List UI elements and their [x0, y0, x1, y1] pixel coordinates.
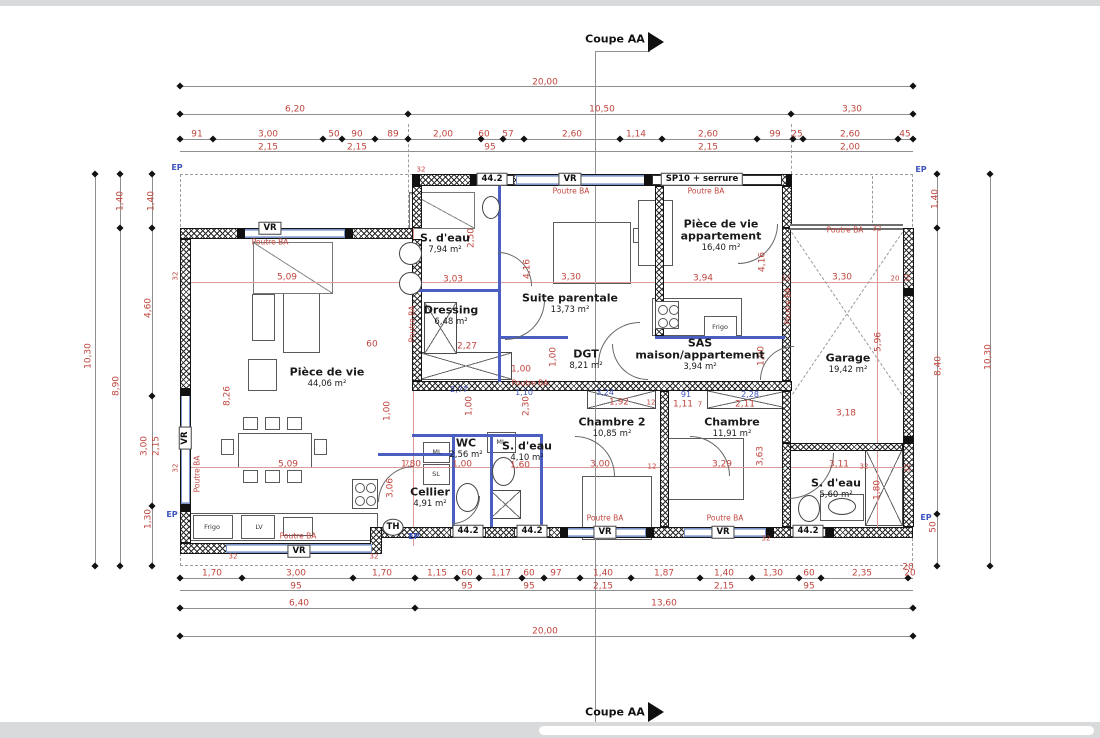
dimension-label: 95 [290, 583, 301, 592]
dimension-tick [116, 170, 123, 177]
dimension-tick [91, 170, 98, 177]
dimension-label: 2,60 [698, 131, 718, 140]
wall-junction [786, 174, 792, 186]
dimension-label: 57 [502, 131, 513, 140]
window-vr-tag: VR [593, 526, 616, 539]
wall-junction [345, 228, 353, 239]
dimension-label: 2,15 [347, 144, 367, 153]
dimension-label: 60 [523, 570, 534, 579]
dimension-tick [748, 574, 755, 581]
wall-junction [180, 388, 191, 396]
dimension-tick [411, 604, 418, 611]
dimension-tick [176, 82, 183, 89]
room-dgt-area: 8,21 m² [569, 362, 602, 371]
dimension-tick [176, 110, 183, 117]
dimension-label: 3,03 [443, 276, 463, 285]
window-vr-tag: VR [287, 545, 310, 558]
red-dimension-line [191, 282, 905, 283]
dimension-tick [909, 632, 916, 639]
dimension-tick [148, 170, 155, 177]
dimension-tick [319, 135, 326, 142]
beam-note-label: Poutre BA [688, 187, 725, 195]
burner-icon [669, 305, 679, 315]
closet-cross [490, 490, 521, 519]
dimension-label: 5,96 [875, 332, 884, 352]
window-vr-tag: VR [258, 222, 281, 235]
dimension-label: 99 [769, 131, 780, 140]
dimension-label: 2,15 [593, 583, 613, 592]
dimension-tick [576, 574, 583, 581]
room-s-eau-1: S. d'eau [420, 233, 470, 244]
cooktop [655, 301, 679, 329]
room-garage-area: 19,42 m² [829, 366, 868, 375]
dimension-label: 91 [191, 131, 202, 140]
dimension-label: 1,70 [202, 570, 222, 579]
window-top-edge [0, 0, 1100, 6]
dimension-small-label: 20 [891, 276, 900, 283]
dimension-small-label: 32 [873, 226, 882, 233]
beam-note-label: Poutre BA [193, 456, 201, 493]
room-s-eau-3: S. d'eau [811, 478, 861, 489]
dimension-label: 1,60 [510, 462, 530, 471]
floor-plan-sheet: Coupe AA Coupe AA 20,006,2010,503,30913,… [0, 6, 1100, 722]
room-garage: Garage [826, 353, 871, 364]
dimension-small-label: 7 [698, 402, 702, 409]
dimension-label: 2,15 [258, 144, 278, 153]
room-wc: WC [456, 438, 476, 449]
appliance-label: Frigo [712, 324, 728, 331]
dimension-label: 1,30 [763, 570, 783, 579]
room-s-eau-3-area: 5,60 m² [819, 491, 852, 500]
dimension-blue-label: 3,24 [596, 389, 614, 397]
dimension-label: 8,40 [935, 356, 944, 376]
window-vr [516, 175, 648, 185]
wall-junction [237, 228, 245, 239]
dimension-label: 1,15 [427, 570, 447, 579]
dimension-label: 3,94 [693, 275, 713, 284]
beam-note-label: Poutre BA [827, 226, 864, 234]
section-arrow [648, 702, 664, 722]
dimension-tick [404, 110, 411, 117]
furniture [314, 439, 327, 455]
burner-icon [366, 496, 376, 506]
dimension-label: 2,60 [562, 131, 582, 140]
dimension-label: 60 [803, 570, 814, 579]
dimension-label: 95 [523, 583, 534, 592]
burner-icon [355, 496, 365, 506]
dimension-label: 3,00 [141, 436, 150, 456]
wall-junction [903, 288, 914, 296]
burner-icon [669, 318, 679, 328]
dimension-label: 2,00 [433, 131, 453, 140]
beam-note-label: Poutre BA [408, 306, 416, 343]
room-dressing: Dressing [424, 305, 479, 316]
dimension-label: 3,00 [258, 131, 278, 140]
dimension-label: 10,30 [985, 344, 994, 370]
dimension-label: 1,00 [384, 401, 393, 421]
dimension-label: 2,11 [735, 401, 755, 410]
ep-marker: EP [166, 511, 177, 519]
room-sas: SAS [688, 338, 712, 349]
dimension-label: 1,30 [145, 509, 154, 529]
dimension-blue-label: 91 [681, 391, 691, 399]
room-chambre-area: 11,91 m² [713, 430, 752, 439]
wall-junction [646, 527, 654, 538]
beam-note-label: Poutre BA [512, 379, 549, 387]
dimension-label: 2,35 [852, 570, 872, 579]
dimension-tick [209, 135, 216, 142]
dimension-label: 2,00 [840, 144, 860, 153]
dimension-label: 4,16 [759, 252, 768, 272]
dimension-tick [986, 170, 993, 177]
dimension-label: 3,18 [836, 410, 856, 419]
room-suite-parentale-area: 13,73 m² [551, 306, 590, 315]
dimension-label: 3,63 [757, 446, 766, 466]
furniture [243, 470, 258, 483]
dimension-label: 60 [461, 570, 472, 579]
dimension-small-label: 12 [782, 276, 791, 283]
dimension-small-label: 32 [370, 554, 379, 561]
window-vr-tag: VR [558, 173, 581, 186]
partition-wall [412, 289, 501, 292]
door-44-tag: 44.2 [453, 525, 484, 538]
dimension-label: 1,40 [593, 570, 613, 579]
dimension-tick [540, 574, 547, 581]
dimension-tick [176, 574, 183, 581]
burner-icon [366, 483, 376, 493]
dimension-tick [616, 135, 623, 142]
window-bottom-edge [0, 722, 1100, 738]
beam-note-label: Poutre BA [280, 532, 317, 540]
ep-marker: EP [408, 533, 419, 541]
dimension-label: 13,60 [651, 600, 677, 609]
dimension-label: 2,15 [698, 144, 718, 153]
sanitary-fixture [399, 242, 422, 265]
dimension-label: 60 [478, 131, 489, 140]
app-window: Coupe AA Coupe AA 20,006,2010,503,30913,… [0, 0, 1100, 738]
dimension-tick [176, 135, 183, 142]
room-dressing-area: 6,48 m² [434, 318, 467, 327]
room-s-eau-1-area: 7,94 m² [428, 246, 461, 255]
dimension-label: 2,27 [457, 343, 477, 352]
dimension-label: 50 [328, 131, 339, 140]
dimension-label: 25 [791, 131, 802, 140]
wall [660, 391, 669, 527]
dimension-small-label: 12 [647, 400, 656, 407]
wall-junction [412, 174, 420, 186]
door-sp10-serrure-tag: SP10 + serrure [661, 173, 743, 186]
dimension-label: 1,00 [466, 396, 475, 416]
beam-note-label: Poutre BA [587, 514, 624, 522]
furniture [252, 294, 275, 341]
dimension-label: 3,11 [829, 461, 849, 470]
appliance-label: Frigo [204, 524, 220, 531]
room-piece-de-vie-area: 44,06 m² [308, 380, 347, 389]
section-arrow [648, 32, 664, 52]
sanitary-fixture [482, 196, 500, 219]
section-label-top: Coupe AA [585, 34, 645, 45]
dimension-tick [696, 574, 703, 581]
cooktop [352, 479, 378, 509]
dimension-line [120, 174, 121, 566]
dimension-label: 89 [387, 131, 398, 140]
horizontal-scrollbar[interactable] [539, 726, 1094, 735]
dimension-tick [520, 135, 527, 142]
dimension-label: 20 [902, 564, 913, 573]
dimension-label: 1,70 [372, 570, 392, 579]
dimension-label: 20,00 [532, 628, 558, 637]
dimension-small-label: 32 [229, 554, 238, 561]
dimension-label: 2,15 [153, 436, 162, 456]
dimension-small-label: 7 [405, 461, 409, 468]
closet-cross [865, 449, 903, 526]
dimension-tick [349, 574, 356, 581]
room-s-eau-2-area: 4,10 m² [510, 454, 543, 463]
dimension-small-label: 32 [905, 464, 912, 473]
dimension-tick [411, 574, 418, 581]
dimension-tick [148, 562, 155, 569]
dimension-label: 2,30 [523, 396, 532, 416]
furniture [221, 439, 234, 455]
dimension-tick [475, 574, 482, 581]
sanitary-fixture [399, 272, 422, 295]
dimension-blue-label: 2,77 [450, 386, 468, 394]
dimension-label: 97 [550, 570, 561, 579]
beam-note-label: Poutre BA [707, 514, 744, 522]
partition-wall [655, 336, 785, 339]
furniture [265, 417, 280, 430]
room-cellier: Cellier [410, 487, 450, 498]
dimension-tick [116, 224, 123, 231]
dimension-label: 3,30 [832, 274, 852, 283]
wall-junction [826, 527, 834, 538]
dimension-tick [909, 82, 916, 89]
section-label-bottom: Coupe AA [585, 707, 645, 718]
dimension-label: 1,40 [932, 189, 941, 209]
shower-fan [253, 242, 333, 294]
dimension-label: 6,20 [285, 106, 305, 115]
wall [412, 186, 422, 228]
dimension-tick [627, 574, 634, 581]
dimension-label: 8,26 [224, 386, 233, 406]
burner-icon [355, 483, 365, 493]
wall [782, 443, 903, 451]
dimension-tick [148, 392, 155, 399]
door-44-tag: 44.2 [793, 525, 824, 538]
dimension-label: 1,17 [491, 570, 511, 579]
appliance-label: ML [432, 449, 441, 456]
room-sas-area: 3,94 m² [683, 363, 716, 372]
dimension-small-label: 12 [648, 464, 657, 471]
dimension-label: 60 [366, 341, 377, 350]
furniture [287, 470, 302, 483]
dimension-label: 1,40 [148, 191, 157, 211]
dimension-label: 95 [484, 144, 495, 153]
beam-note-label: Poutre BA [252, 238, 289, 246]
wall-junction [180, 504, 191, 512]
room-chambre-2: Chambre 2 [578, 417, 645, 428]
dimension-label: 3,00 [590, 461, 610, 470]
dimension-tick [817, 574, 824, 581]
dimension-line [95, 174, 96, 566]
furniture [265, 470, 280, 483]
dimension-label: 3,30 [561, 274, 581, 283]
dimension-small-label: 32 [173, 272, 180, 281]
dimension-label: 1,40 [117, 191, 126, 211]
window-vr-tag: VR [711, 526, 734, 539]
dimension-tick [933, 562, 940, 569]
dimension-tick [933, 170, 940, 177]
dimension-label: 4,60 [145, 298, 154, 318]
dimension-tick [909, 604, 916, 611]
dimension-tick [176, 604, 183, 611]
dimension-label: 2,15 [714, 583, 734, 592]
dimension-label: 2,60 [840, 131, 860, 140]
room-piece-de-vie-appartement-line2: appartement [681, 231, 762, 242]
burner-icon [658, 305, 668, 315]
dimension-label: 3,06 [387, 478, 396, 498]
dimension-label: 1,11 [673, 401, 693, 410]
dimension-small-label: 32 [173, 464, 180, 473]
dimension-tick [787, 110, 794, 117]
furniture [287, 417, 302, 430]
dimension-label: 1,00 [452, 461, 472, 470]
dimension-label: 1,00 [511, 366, 531, 375]
room-chambre: Chambre [704, 417, 760, 428]
partition-wall [490, 434, 493, 527]
dimension-small-label: 32 [860, 464, 869, 471]
dimension-tick [795, 574, 802, 581]
dimension-tick [404, 135, 411, 142]
partition-wall [378, 453, 454, 456]
dimension-tick [453, 574, 460, 581]
door-44-tag: 44.2 [477, 173, 508, 186]
dimension-tick [238, 574, 245, 581]
dimension-label: 1,40 [714, 570, 734, 579]
dimension-label: 8,90 [113, 376, 122, 396]
wall [782, 186, 792, 228]
room-s-eau-2: S. d'eau [502, 441, 552, 452]
dimension-label: 45 [899, 131, 910, 140]
dimension-small-label: 32 [905, 274, 912, 283]
dimension-label: 5,09 [277, 274, 297, 283]
dashed-projection-line [872, 176, 873, 228]
room-piece-de-vie-appartement-area: 16,40 m² [702, 244, 741, 253]
dimension-label: 5,09 [278, 461, 298, 470]
dimension-label: 6,40 [289, 600, 309, 609]
dimension-small-label: 32 [762, 536, 771, 543]
furniture [238, 433, 312, 468]
dimension-blue-label: 2,28 [741, 391, 759, 399]
dimension-label: 1,80 [874, 480, 883, 500]
dimension-tick [176, 632, 183, 639]
dimension-tick [116, 562, 123, 569]
wall-junction [644, 174, 652, 186]
dimension-small-label: 32 [417, 167, 426, 174]
dimension-label: 3,29 [712, 461, 732, 470]
dimension-line [990, 174, 991, 566]
room-suite-parentale: Suite parentale [522, 293, 618, 304]
dimension-tick [371, 135, 378, 142]
appliance-label: SL [432, 471, 440, 478]
dimension-label: 95 [461, 583, 472, 592]
room-chambre-2-area: 10,85 m² [593, 430, 632, 439]
wall [782, 391, 791, 443]
dimension-tick [933, 224, 940, 231]
partition-wall [412, 434, 543, 437]
dimension-label: 95 [803, 583, 814, 592]
dimension-label: 10,50 [589, 106, 615, 115]
dimension-label: 1,14 [626, 131, 646, 140]
dimension-tick [753, 135, 760, 142]
dimension-label: 1,92 [609, 399, 629, 408]
wall-junction [560, 527, 568, 538]
dimension-label: 90 [351, 131, 362, 140]
dimension-tick [91, 562, 98, 569]
dimension-tick [658, 135, 665, 142]
dimension-label: 4,16 [524, 259, 533, 279]
room-sas-line2: maison/appartement [635, 350, 764, 361]
dimension-blue-label: 1,10 [515, 389, 533, 397]
dimension-tick [909, 110, 916, 117]
ep-marker: EP [915, 166, 926, 174]
dimension-label: 50 [930, 521, 939, 532]
door-44-tag: 44.2 [517, 525, 548, 538]
dimension-label: 3,00 [286, 570, 306, 579]
room-wc-area: 2,56 m² [449, 451, 482, 460]
ep-marker: EP [171, 164, 182, 172]
wall-junction [903, 436, 914, 444]
dimension-label: 3,30 [842, 106, 862, 115]
dimension-label: 10,30 [85, 343, 94, 369]
beam-note-label: Poutre BA [784, 288, 792, 325]
furniture [248, 359, 277, 391]
room-piece-de-vie-appartement: Pièce de vie [684, 219, 759, 230]
furniture [243, 417, 258, 430]
thermostat-tag: TH [383, 519, 404, 536]
appliance-label: LV [255, 524, 262, 531]
room-cellier-area: 4,91 m² [413, 500, 446, 509]
beam-note-label: Poutre BA [553, 187, 590, 195]
ep-marker: EP [920, 514, 931, 522]
dimension-label: 1,87 [654, 570, 674, 579]
dimension-line [180, 151, 913, 152]
dimension-tick [933, 510, 940, 517]
burner-icon [658, 318, 668, 328]
dimension-tick [148, 224, 155, 231]
sanitary-fixture [798, 495, 820, 522]
dimension-tick [986, 562, 993, 569]
dimension-label: 20,00 [532, 79, 558, 88]
sanitary-fixture [828, 498, 856, 515]
window-vr-tag: VR [179, 426, 192, 449]
room-dgt: DGT [573, 349, 598, 360]
dimension-label: 1,00 [550, 347, 559, 367]
room-piece-de-vie: Pièce de vie [290, 367, 365, 378]
dimension-line [595, 51, 650, 52]
